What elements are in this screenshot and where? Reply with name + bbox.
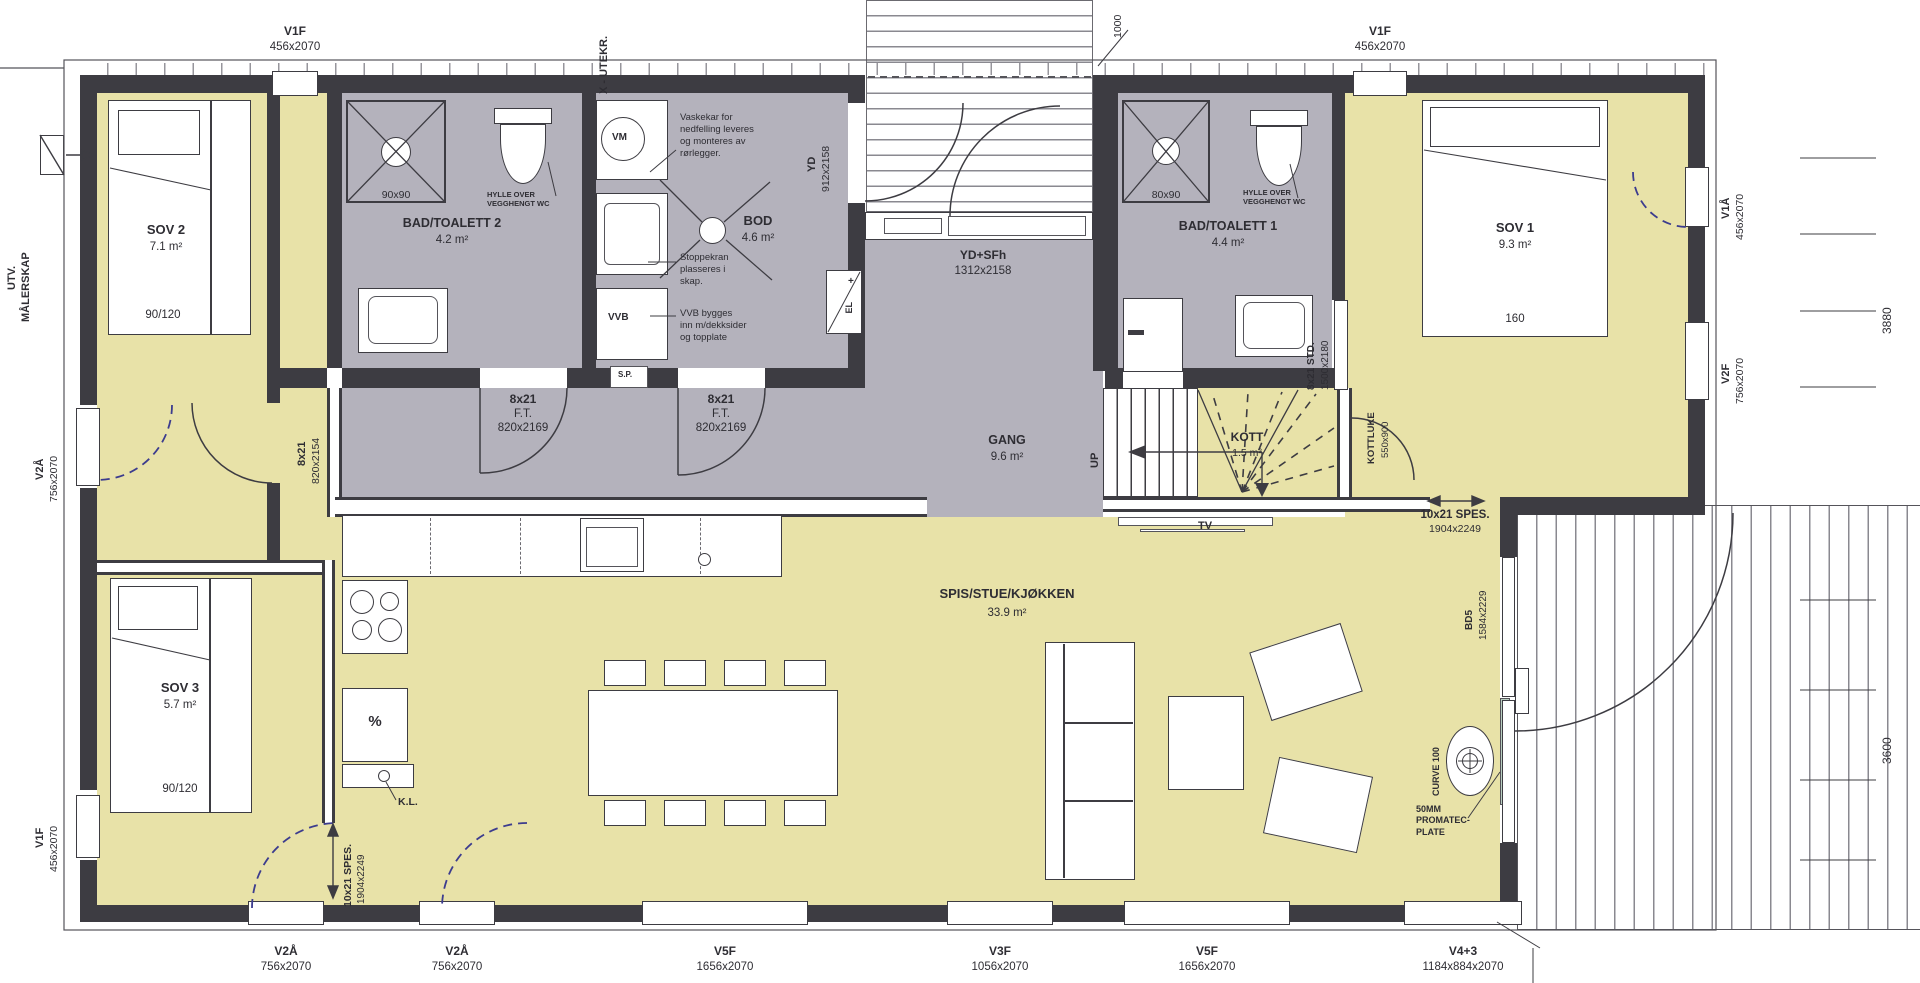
window-label: V1F	[284, 24, 306, 40]
window-label-size: 456x2070	[48, 790, 60, 872]
door-label: 8x21	[510, 392, 537, 408]
room-area: 7.1 m²	[150, 240, 183, 254]
door-label: 8x21	[296, 418, 308, 466]
door-label-size: 1904x2249	[1429, 523, 1481, 536]
door-label: KOTTLUKE	[1366, 372, 1377, 464]
door-label-size: 550x900	[1380, 378, 1391, 458]
window-label: V2Å	[274, 944, 297, 960]
meter-box-label: UTV.	[6, 230, 18, 290]
door-label-size: 820x2154	[310, 398, 322, 484]
room-name: BAD/TOALETT 2	[403, 215, 501, 231]
door-label: YD+SFh	[960, 248, 1006, 264]
door-label: 8x21 STD.	[1306, 298, 1317, 390]
room-name: SOV 2	[147, 222, 185, 239]
room-area: 1.5 m²	[1232, 447, 1262, 460]
window-label: V2Å	[445, 944, 468, 960]
door-label-size: 1500x2180	[1320, 298, 1331, 390]
window-label-size: 756x2070	[432, 960, 483, 974]
bed-size: 90/120	[162, 782, 197, 796]
dimension-arrows	[40, 135, 1484, 898]
door-label-size: 1312x2158	[955, 264, 1012, 278]
promatec-note: 50MM PROMATEC- PLATE	[1416, 804, 1470, 838]
window-label: V4+3	[1449, 944, 1477, 960]
dim-1000: 1000	[1112, 2, 1124, 38]
shower-size: 80x90	[1152, 189, 1181, 202]
room-area: 4.6 m²	[742, 231, 775, 245]
window-label-size: 456x2070	[1734, 156, 1746, 240]
door-label-type: F.T.	[712, 407, 730, 421]
window-label-size: 1656x2070	[697, 960, 754, 974]
shower-size: 90x90	[382, 189, 411, 202]
stove-cross	[1458, 749, 1482, 773]
room-area: 4.2 m²	[436, 233, 469, 247]
window-label-size: 1056x2070	[972, 960, 1029, 974]
window-label: V1F	[34, 808, 46, 848]
door-label: BD5	[1464, 590, 1475, 630]
wc-shelf-note: HYLLE OVER VEGGHENGT WC	[487, 190, 550, 208]
room-name: SOV 1	[1496, 220, 1534, 237]
room-area: 9.6 m²	[991, 450, 1024, 464]
room-name: SOV 3	[161, 680, 199, 697]
floor-plan: S.P. VM	[0, 0, 1920, 983]
window-label-size: 756x2070	[1734, 320, 1746, 404]
room-name: GANG	[988, 432, 1026, 448]
door-label-size: 820x2169	[696, 421, 747, 435]
bed-size: 90/120	[145, 308, 180, 322]
door-label-size: 1904x2249	[356, 818, 367, 904]
door-swing-arcs	[192, 103, 1733, 731]
door-label: 10x21 SPES.	[1420, 508, 1489, 523]
room-name: SPIS/STUE/KJØKKEN	[939, 586, 1074, 603]
room-area: 33.9 m²	[988, 606, 1027, 620]
door-label: YD	[806, 138, 818, 172]
shower-cross-lines	[348, 102, 1208, 280]
tv-label: TV	[1198, 520, 1212, 534]
window-label-size: 456x2070	[270, 40, 321, 54]
dim-3600: 3600	[1880, 712, 1894, 764]
door-label-size: 1584x2229	[1478, 560, 1489, 640]
room-name: BAD/TOALETT 1	[1179, 218, 1277, 234]
window-label: V3F	[989, 944, 1011, 960]
stairs-up-label: UP	[1089, 436, 1101, 468]
room-name: KOTT	[1231, 430, 1264, 446]
window-label-size: 1184x884x2070	[1423, 960, 1504, 974]
x-utekr-label: X - UTEKR.	[598, 0, 610, 94]
window-label-size: 756x2070	[261, 960, 312, 974]
eave-outline	[0, 60, 1716, 930]
sliding-door-arcs	[97, 172, 1688, 908]
window-label-size: 756x2070	[48, 420, 60, 502]
door-label-type: F.T.	[514, 407, 532, 421]
door-label-size: 820x2169	[498, 421, 549, 435]
window-label: V5F	[1196, 944, 1218, 960]
plumbing-note: Vaskekar for nedfelling leveres og monte…	[680, 112, 754, 160]
right-dimension-ticks	[1800, 158, 1876, 860]
stove-label: CURVE 100	[1431, 726, 1441, 796]
dim-3880: 3880	[1880, 282, 1894, 334]
window-label-size: 456x2070	[1355, 40, 1406, 54]
window-label: V1Å	[1720, 175, 1732, 219]
door-label: 10x21 SPES.	[342, 815, 354, 907]
door-label-size: 912x2158	[820, 120, 832, 192]
water-heater-note: VVB bygges inn m/dekksider og topplate	[680, 308, 747, 344]
window-label: V5F	[714, 944, 736, 960]
room-area: 5.7 m²	[164, 698, 197, 712]
window-label: V2F	[1720, 340, 1732, 384]
room-area: 9.3 m²	[1499, 238, 1532, 252]
plan-linework	[0, 0, 1920, 983]
window-label: V1F	[1369, 24, 1391, 40]
leader-lines	[386, 30, 1540, 983]
stopcock-note: Stoppekran plasseres i skap.	[680, 252, 729, 288]
window-label: V2Å	[34, 440, 46, 480]
wc-shelf-note: HYLLE OVER VEGGHENGT WC	[1243, 188, 1306, 206]
door-label: 8x21	[708, 392, 735, 408]
meter-box-label2: MÅLERSKAP	[20, 177, 32, 322]
room-area: 4.4 m²	[1212, 236, 1245, 250]
room-name: BOD	[744, 213, 773, 230]
bed-size: 160	[1505, 312, 1524, 326]
window-label-size: 1656x2070	[1179, 960, 1236, 974]
